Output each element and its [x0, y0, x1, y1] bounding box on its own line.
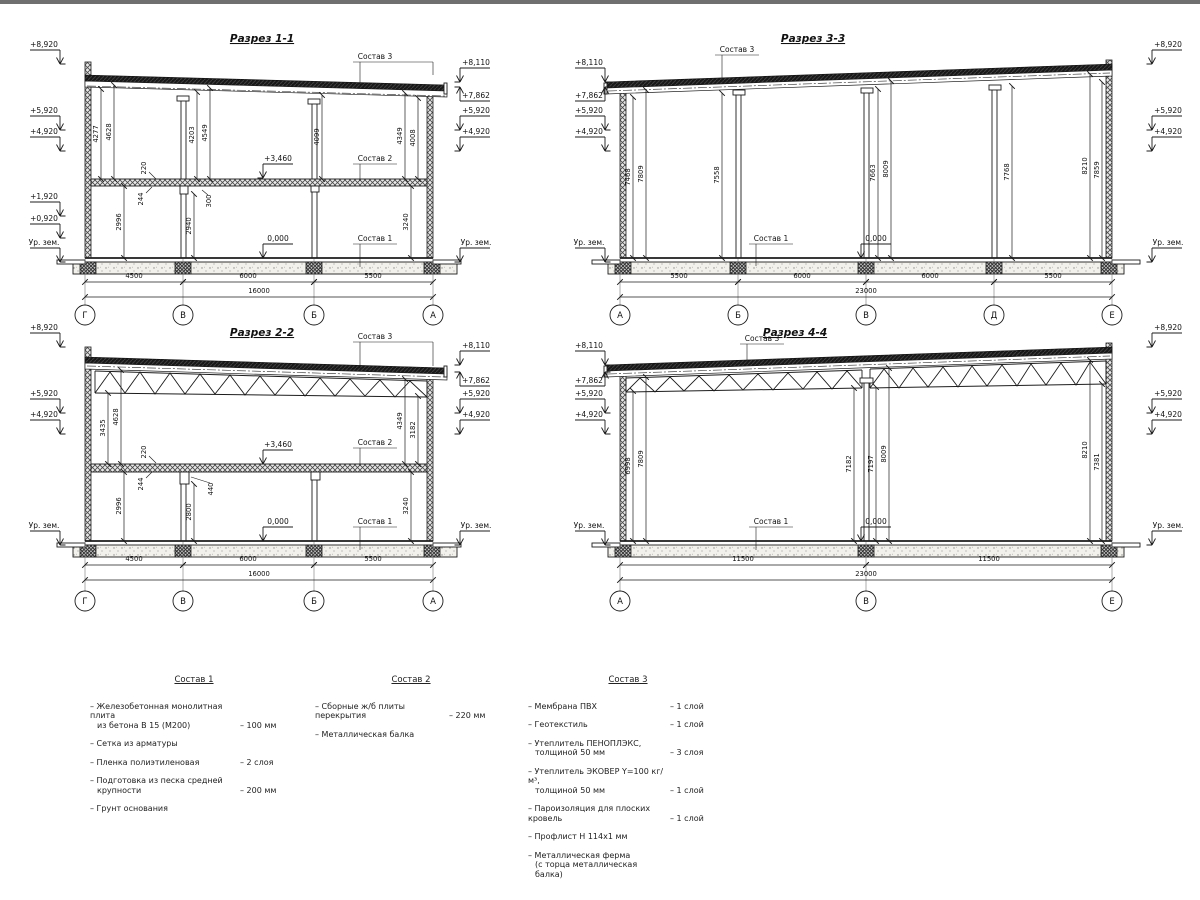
layer-label: Состав 3	[358, 52, 393, 61]
axis-letter: В	[863, 597, 869, 607]
level-value: 0,000	[267, 234, 289, 243]
legend-item: – Пароизоляция для плоских кровель– 1 сл…	[528, 804, 728, 823]
elevation-marks-right: +8,110 +7,862 +5,920 +4,920 Ур. зем.	[455, 341, 492, 545]
axis-letter: Б	[735, 311, 741, 321]
elevation-value: +5,920	[30, 106, 58, 115]
layer-label: Состав 1	[754, 517, 789, 526]
layer-label: Состав 3	[720, 45, 755, 54]
legend-item: – Сетка из арматуры	[90, 739, 298, 749]
section-2-2: Разрез 2-2 +8,920 +5,920 +4,920 Ур. зем.	[29, 323, 492, 611]
section-title: Разрез 1-1	[230, 33, 294, 45]
ground-level-label: Ур. зем.	[1153, 521, 1184, 530]
vertical-dimensions: 6998 7809 7182 7197 8009 8210 7381	[624, 360, 1102, 541]
svg-text:244: 244	[137, 478, 145, 491]
elevation-value: +8,920	[30, 323, 58, 332]
legend-item: – Утеплитель ЭКОВЕР Y=100 кг/м³,толщиной…	[528, 767, 728, 796]
legend-item: – Металлическая балка	[315, 730, 507, 740]
legend-item: – Профлист Н 114х1 мм	[528, 832, 728, 842]
legend-value: – 100 мм	[240, 721, 298, 731]
legend-value: – 1 слой	[670, 786, 728, 796]
ground-level-label: Ур. зем.	[461, 238, 492, 247]
layer-callouts: Состав 3 Состав 2 Состав 1	[353, 332, 433, 550]
elevation-marks-right: +8,920 +5,920 +4,920 Ур. зем.	[1147, 40, 1184, 262]
ground-level-label: Ур. зем.	[29, 238, 60, 247]
elevation-marks-right: +8,920 +5,920 +4,920 Ур. зем.	[1147, 323, 1184, 545]
axis-letter: А	[617, 311, 623, 321]
svg-text:4349: 4349	[396, 412, 404, 429]
legend-value: – 2 слоя	[240, 758, 298, 768]
svg-text:2800: 2800	[185, 503, 193, 520]
layer-label: Состав 1	[358, 234, 393, 243]
ground-level-label: Ур. зем.	[29, 521, 60, 530]
svg-text:23000: 23000	[855, 287, 877, 295]
elevation-value: +8,110	[462, 341, 490, 350]
elevation-marks-left: +8,110 +7,862 +5,920 +4,920 Ур. зем.	[574, 58, 611, 262]
elevation-value: +7,862	[575, 91, 603, 100]
svg-text:440: 440	[207, 483, 215, 496]
svg-text:7859: 7859	[1093, 161, 1101, 178]
svg-text:4008: 4008	[409, 129, 417, 146]
axis-letter: В	[180, 597, 186, 607]
layer-label: Состав 2	[358, 438, 393, 447]
section-title: Разрез 2-2	[230, 327, 294, 339]
legend-item: – Железобетонная монолитная плитаиз бето…	[90, 702, 298, 731]
svg-text:3240: 3240	[402, 213, 410, 230]
elevation-value: +7,862	[462, 376, 490, 385]
legend-sostav-1: Состав 1 – Железобетонная монолитная пли…	[90, 676, 298, 823]
axis-letter: Г	[82, 311, 87, 321]
level-value: 0,000	[267, 517, 289, 526]
level-marks: 0,000	[856, 234, 892, 258]
legend-item: – Металлическая ферма(с торца металличес…	[528, 851, 728, 880]
svg-text:2996: 2996	[115, 213, 123, 230]
svg-text:300: 300	[205, 195, 213, 208]
axis-bubbles: Г В Б А	[75, 591, 443, 611]
elevation-value: +5,920	[575, 389, 603, 398]
elevation-value: +5,920	[462, 389, 490, 398]
section-4-4: Разрез 4-4 +8,110 +7,862 +5,	[574, 323, 1184, 611]
svg-text:3182: 3182	[409, 421, 417, 438]
level-value: +3,460	[264, 440, 292, 449]
legend-item: – Мембрана ПВХ– 1 слой	[528, 702, 728, 712]
elevation-value: +5,920	[575, 106, 603, 115]
level-value: +3,460	[264, 154, 292, 163]
axis-letter: В	[180, 311, 186, 321]
svg-text:5500: 5500	[364, 272, 381, 280]
legend-value: – 200 мм	[240, 786, 298, 796]
elevation-value: +4,920	[462, 410, 490, 419]
svg-text:5500: 5500	[670, 272, 687, 280]
legend-value: – 1 слой	[670, 720, 728, 730]
elevation-value: +4,920	[462, 127, 490, 136]
layer-label: Состав 3	[745, 334, 780, 343]
section-3-3: Разрез 3-3 +8,110 +7,862 +5,920 +4,920 У…	[574, 33, 1184, 325]
elevation-value: +5,920	[462, 106, 490, 115]
elevation-marks-left: +8,920 +5,920 +4,920 +1,920 +0,920 Ур. з…	[29, 40, 66, 262]
axis-letter: А	[617, 597, 623, 607]
svg-text:4099: 4099	[313, 128, 321, 145]
svg-text:7182: 7182	[845, 455, 853, 472]
legend-item: – Пленка полиэтиленовая– 2 слоя	[90, 758, 298, 768]
level-marks: +3,460 0,000	[258, 154, 294, 258]
level-value: 0,000	[865, 234, 887, 243]
axis-letter: А	[430, 597, 436, 607]
ground-level-label: Ур. зем.	[574, 521, 605, 530]
legend-value: – 1 слой	[670, 814, 728, 824]
elevation-value: +4,920	[30, 127, 58, 136]
section-title: Разрез 3-3	[781, 33, 845, 45]
axis-letter: Д	[991, 311, 998, 321]
svg-text:5500: 5500	[1044, 272, 1061, 280]
elevation-value: +8,920	[1154, 40, 1182, 49]
ground-level-label: Ур. зем.	[1153, 238, 1184, 247]
svg-text:4628: 4628	[112, 408, 120, 425]
svg-text:3435: 3435	[99, 419, 107, 436]
axis-letter: Б	[311, 597, 317, 607]
legend-title: Состав 2	[315, 676, 507, 686]
svg-text:220: 220	[140, 162, 148, 175]
svg-text:6998: 6998	[624, 457, 632, 474]
building-structure	[57, 347, 461, 557]
elevation-value: +8,110	[462, 58, 490, 67]
axis-letter: А	[430, 311, 436, 321]
svg-text:3240: 3240	[402, 497, 410, 514]
svg-text:7558: 7558	[713, 166, 721, 183]
axis-letter: Б	[311, 311, 317, 321]
svg-text:244: 244	[137, 193, 145, 206]
level-marks: +3,460 0,000	[258, 440, 294, 541]
svg-text:6000: 6000	[239, 272, 256, 280]
svg-text:7197: 7197	[867, 455, 875, 472]
elevation-value: +4,920	[1154, 410, 1182, 419]
elevation-value: +4,920	[575, 410, 603, 419]
legend-sostav-3: Состав 3 – Мембрана ПВХ– 1 слой – Геотек…	[528, 676, 728, 888]
svg-text:4500: 4500	[125, 272, 142, 280]
svg-text:7663: 7663	[869, 164, 877, 181]
svg-text:7381: 7381	[1093, 453, 1101, 470]
svg-text:6000: 6000	[921, 272, 938, 280]
elevation-value: +4,920	[30, 410, 58, 419]
legend-sostav-2: Состав 2 – Сборные ж/б плиты перекрытия–…	[315, 676, 507, 748]
ground-level-label: Ур. зем.	[461, 521, 492, 530]
legend-value: – 1 слой	[670, 702, 728, 712]
axis-letter: Е	[1109, 311, 1114, 321]
svg-text:4203: 4203	[188, 126, 196, 143]
elevation-marks-left: +8,920 +5,920 +4,920 Ур. зем.	[29, 323, 66, 545]
layer-label: Состав 3	[358, 332, 393, 341]
svg-text:6000: 6000	[239, 555, 256, 563]
elevation-value: +5,920	[1154, 389, 1182, 398]
sections-canvas: Разрез 1-1 +8,920 +5,920 +4,920 +1,920 +…	[0, 0, 1200, 660]
svg-text:4500: 4500	[125, 555, 142, 563]
building-structure	[57, 62, 461, 274]
elevation-value: +7,862	[575, 376, 603, 385]
drawing-sheet: Разрез 1-1 +8,920 +5,920 +4,920 +1,920 +…	[0, 0, 1200, 900]
svg-text:8009: 8009	[882, 160, 890, 177]
svg-text:2996: 2996	[115, 497, 123, 514]
axis-bubbles: А Б В Д Е	[610, 305, 1122, 325]
elevation-value: +7,862	[462, 91, 490, 100]
vertical-dimensions: 3435 4628 220 244 2996 2800 440 4349 318…	[99, 370, 418, 541]
svg-text:220: 220	[140, 446, 148, 459]
svg-text:4549: 4549	[201, 124, 209, 141]
svg-text:16000: 16000	[248, 287, 270, 295]
svg-text:11500: 11500	[732, 555, 754, 563]
vertical-dimensions: 7468 7809 7558 7663 8009 7768 8210 7859	[624, 74, 1102, 258]
legend-item: – Подготовка из песка среднейкрупности– …	[90, 776, 298, 795]
axis-bubbles: А В Е	[610, 591, 1122, 611]
legend-item: – Геотекстиль– 1 слой	[528, 720, 728, 730]
axis-letter: Г	[82, 597, 87, 607]
layer-label: Состав 2	[358, 154, 393, 163]
legend-title: Состав 3	[528, 676, 728, 686]
layer-label: Состав 1	[358, 517, 393, 526]
elevation-value: +8,920	[1154, 323, 1182, 332]
svg-text:23000: 23000	[855, 570, 877, 578]
svg-text:4628: 4628	[105, 123, 113, 140]
elevation-value: +8,920	[30, 40, 58, 49]
axis-letter: Е	[1109, 597, 1114, 607]
legend-item: – Утеплитель ПЕНОПЛЭКС,толщиной 50 мм– 3…	[528, 739, 728, 758]
legend-title: Состав 1	[90, 676, 298, 686]
svg-text:8210: 8210	[1081, 157, 1089, 174]
axis-letter: В	[863, 311, 869, 321]
svg-text:4349: 4349	[396, 127, 404, 144]
level-marks: 0,000	[856, 517, 892, 541]
svg-text:6000: 6000	[793, 272, 810, 280]
svg-text:4277: 4277	[92, 125, 100, 142]
svg-text:2940: 2940	[185, 217, 193, 234]
legend-value: – 220 мм	[449, 711, 507, 721]
elevation-value: +1,920	[30, 192, 58, 201]
elevation-value: +8,110	[575, 58, 603, 67]
svg-text:11500: 11500	[978, 555, 1000, 563]
legend-item: – Сборные ж/б плиты перекрытия– 220 мм	[315, 702, 507, 721]
svg-text:7809: 7809	[637, 450, 645, 467]
elevation-value: +5,920	[30, 389, 58, 398]
ground-level-label: Ур. зем.	[574, 238, 605, 247]
svg-text:16000: 16000	[248, 570, 270, 578]
elevation-value: +5,920	[1154, 106, 1182, 115]
elevation-marks-right: +8,110 +7,862 +5,920 +4,920 Ур. зем.	[455, 58, 492, 262]
legend-value: – 3 слоя	[670, 748, 728, 758]
svg-text:5500: 5500	[364, 555, 381, 563]
svg-text:7468: 7468	[624, 168, 632, 185]
axis-bubbles: Г В Б А	[75, 305, 443, 325]
layer-label: Состав 1	[754, 234, 789, 243]
svg-text:7768: 7768	[1003, 163, 1011, 180]
legend-item: – Грунт основания	[90, 804, 298, 814]
section-1-1: Разрез 1-1 +8,920 +5,920 +4,920 +1,920 +…	[29, 33, 492, 325]
elevation-value: +4,920	[1154, 127, 1182, 136]
elevation-value: +4,920	[575, 127, 603, 136]
elevation-value: +0,920	[30, 214, 58, 223]
svg-text:8210: 8210	[1081, 441, 1089, 458]
svg-text:7809: 7809	[637, 165, 645, 182]
elevation-value: +8,110	[575, 341, 603, 350]
vertical-dimensions: 4277 4628 4203 4549 4099 4349 4008 220 2…	[92, 85, 418, 258]
svg-text:8009: 8009	[880, 445, 888, 462]
